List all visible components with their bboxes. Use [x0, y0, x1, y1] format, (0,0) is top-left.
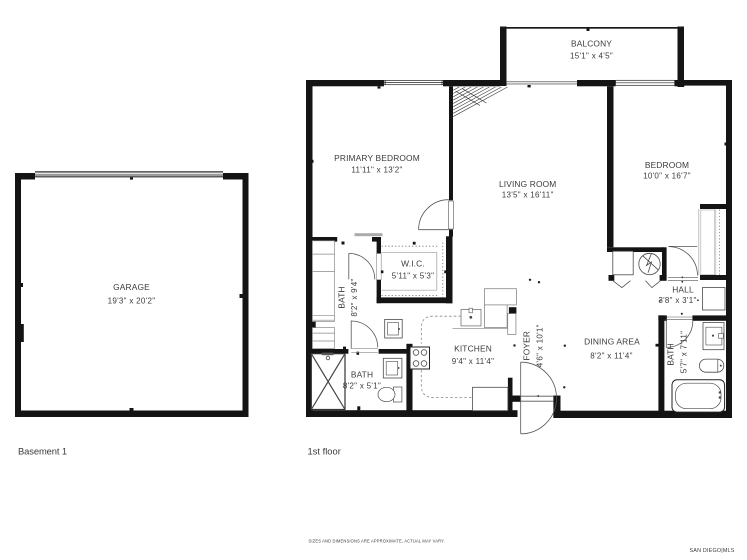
svg-text:3'8" x 3'1": 3'8" x 3'1": [658, 296, 696, 305]
svg-text:9'4" x 11'4": 9'4" x 11'4": [452, 357, 494, 366]
svg-text:SAN DIEGO|MLS: SAN DIEGO|MLS: [690, 548, 735, 554]
svg-text:13'5" x 16'11": 13'5" x 16'11": [502, 191, 554, 200]
svg-text:10'0" x 16'7": 10'0" x 16'7": [643, 172, 691, 181]
svg-text:BALCONY: BALCONY: [571, 39, 612, 49]
svg-text:W.I.C.: W.I.C.: [401, 259, 425, 269]
svg-text:LIVING ROOM: LIVING ROOM: [499, 179, 557, 189]
svg-text:19'3" x 20'2": 19'3" x 20'2": [108, 297, 156, 306]
svg-text:BATH: BATH: [666, 343, 676, 365]
svg-text:8'2" x 11'4": 8'2" x 11'4": [590, 352, 632, 361]
svg-text:BATH: BATH: [337, 286, 347, 308]
svg-text:SIZES AND DIMENSIONS ARE APPRO: SIZES AND DIMENSIONS ARE APPROXIMATE, AC…: [309, 539, 445, 544]
svg-text:GARAGE: GARAGE: [113, 282, 150, 292]
svg-text:BATH: BATH: [351, 370, 373, 380]
svg-text:1st floor: 1st floor: [308, 446, 341, 457]
svg-text:5'7" x 7'11": 5'7" x 7'11": [680, 331, 689, 373]
svg-text:11'11" x 13'2": 11'11" x 13'2": [351, 166, 402, 175]
svg-text:8'2" x 9'4": 8'2" x 9'4": [350, 278, 359, 316]
svg-text:PRIMARY BEDROOM: PRIMARY BEDROOM: [334, 153, 420, 163]
svg-text:FOYER: FOYER: [522, 331, 532, 361]
svg-text:15'1" x 4'5": 15'1" x 4'5": [570, 52, 613, 61]
svg-text:DINING AREA: DINING AREA: [584, 337, 640, 347]
svg-text:8'2" x 5'1": 8'2" x 5'1": [343, 382, 381, 391]
svg-text:HALL: HALL: [672, 285, 694, 295]
svg-text:BEDROOM: BEDROOM: [645, 160, 689, 170]
svg-text:Basement 1: Basement 1: [18, 446, 67, 457]
svg-text:4'6" x 10'1": 4'6" x 10'1": [536, 324, 545, 367]
svg-text:5'11" x 5'3": 5'11" x 5'3": [392, 272, 434, 281]
svg-text:KITCHEN: KITCHEN: [454, 344, 492, 354]
